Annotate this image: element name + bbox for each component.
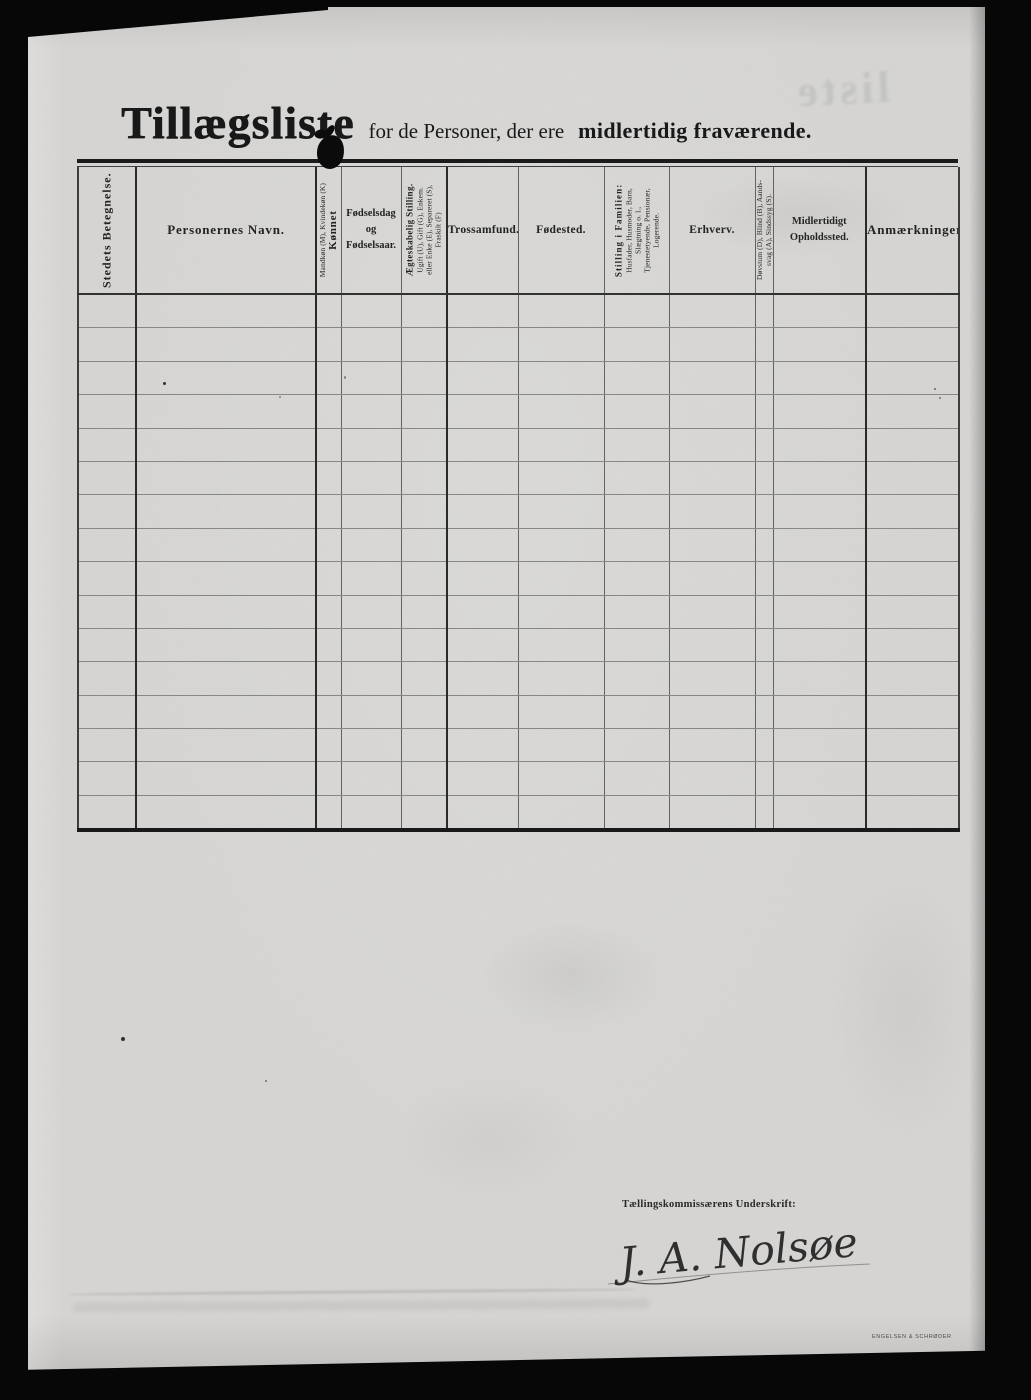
header-line: Erhverv.: [670, 224, 755, 236]
empty-cell: [136, 294, 316, 328]
empty-cell: [773, 695, 866, 728]
paper-speck: [939, 397, 941, 399]
header-line: Trossamfund.: [448, 224, 518, 236]
empty-cell: [669, 294, 755, 328]
empty-cell: [866, 695, 959, 728]
header-line: Mandkøn (M), Kvindekøn (K): [318, 183, 327, 277]
empty-cell: [401, 562, 447, 595]
empty-cell: [447, 528, 518, 561]
empty-cell: [518, 595, 604, 628]
empty-cell: [669, 461, 755, 494]
empty-cell: [401, 729, 447, 762]
empty-cell: [518, 495, 604, 528]
empty-cell: [341, 461, 401, 494]
header-line: Stilling i Familien:: [613, 183, 624, 277]
header-line: Ægteskabelig Stilling.: [405, 184, 416, 277]
empty-cell: [78, 662, 136, 695]
empty-cell: [866, 662, 959, 695]
empty-cell: [341, 695, 401, 728]
form-table: Stedets Betegnelse. Personernes Navn. Ma…: [77, 167, 960, 832]
header-line: Ugift (U), Gift (G), Enkem.: [416, 184, 425, 277]
empty-cell: [773, 762, 866, 795]
empty-cell: [866, 495, 959, 528]
empty-cell: [773, 729, 866, 762]
empty-cell: [401, 294, 447, 328]
empty-cell: [316, 495, 341, 528]
empty-cell: [136, 395, 316, 428]
empty-cell: [773, 595, 866, 628]
header-line: Stedets Betegnelse.: [100, 172, 114, 288]
empty-cell: [669, 795, 755, 830]
empty-cell: [866, 428, 959, 461]
title-rule-thick: [77, 159, 958, 163]
empty-cell: [755, 595, 773, 628]
empty-cell: [773, 294, 866, 328]
table-row: [78, 628, 959, 661]
header-line: eller Enke (E), Separeret (S),: [425, 184, 434, 277]
empty-cell: [518, 695, 604, 728]
empty-cell: [401, 395, 447, 428]
empty-cell: [755, 729, 773, 762]
empty-cell: [316, 762, 341, 795]
empty-cell: [341, 328, 401, 361]
empty-cell: [866, 595, 959, 628]
table-row: [78, 395, 959, 428]
empty-cell: [604, 294, 669, 328]
column-header-fodselsdag: Fødselsdag og Fødselsaar.: [341, 167, 401, 294]
table-row: [78, 695, 959, 728]
empty-cell: [518, 762, 604, 795]
empty-cell: [773, 662, 866, 695]
empty-cell: [447, 461, 518, 494]
printer-mark: ENGELSEN & SCHRØDER: [872, 1334, 952, 1340]
table-row: [78, 662, 959, 695]
empty-cell: [866, 762, 959, 795]
empty-cell: [401, 495, 447, 528]
empty-cell: [518, 662, 604, 695]
empty-cell: [604, 461, 669, 494]
empty-cell: [669, 328, 755, 361]
table-row: [78, 528, 959, 561]
empty-cell: [755, 328, 773, 361]
empty-cell: [773, 328, 866, 361]
empty-cell: [518, 361, 604, 394]
empty-cell: [518, 428, 604, 461]
empty-cell: [604, 395, 669, 428]
empty-cell: [316, 729, 341, 762]
empty-cell: [341, 395, 401, 428]
empty-cell: [447, 628, 518, 661]
empty-cell: [755, 562, 773, 595]
table-row: [78, 428, 959, 461]
empty-cell: [136, 361, 316, 394]
empty-cell: [755, 695, 773, 728]
empty-cell: [316, 361, 341, 394]
empty-cell: [78, 729, 136, 762]
empty-cell: [669, 395, 755, 428]
empty-cell: [316, 428, 341, 461]
empty-cell: [518, 461, 604, 494]
empty-cell: [78, 628, 136, 661]
empty-cell: [755, 428, 773, 461]
header-line: Kønnet: [327, 183, 340, 277]
empty-cell: [316, 461, 341, 494]
empty-cell: [604, 795, 669, 830]
column-header-aegteskabelig-stilling: Ægteskabelig Stilling. Ugift (U), Gift (…: [401, 167, 447, 294]
empty-cell: [341, 762, 401, 795]
empty-cell: [773, 395, 866, 428]
form-title: Tillægsliste for de Personer, der ere mi…: [121, 96, 812, 149]
header-line: Husfader, Husmoder, Barn,: [624, 183, 633, 277]
empty-cell: [341, 528, 401, 561]
empty-cell: [401, 528, 447, 561]
empty-cell: [604, 595, 669, 628]
empty-cell: [773, 495, 866, 528]
empty-cell: [773, 562, 866, 595]
empty-cell: [669, 428, 755, 461]
empty-cell: [755, 528, 773, 561]
empty-cell: [604, 328, 669, 361]
empty-cell: [136, 495, 316, 528]
empty-cell: [866, 361, 959, 394]
empty-cell: [604, 662, 669, 695]
empty-cell: [669, 695, 755, 728]
empty-cell: [401, 662, 447, 695]
empty-cell: [773, 528, 866, 561]
empty-cell: [136, 595, 316, 628]
empty-cell: [755, 361, 773, 394]
empty-cell: [78, 695, 136, 728]
empty-cell: [866, 294, 959, 328]
empty-cell: [755, 762, 773, 795]
table-body: [78, 294, 959, 830]
empty-cell: [401, 361, 447, 394]
header-line: Midlertidigt: [774, 214, 866, 230]
empty-cell: [316, 595, 341, 628]
paper-speck: [163, 382, 166, 385]
empty-cell: [447, 428, 518, 461]
empty-cell: [604, 428, 669, 461]
empty-cell: [669, 628, 755, 661]
empty-cell: [604, 562, 669, 595]
paper-speck: [344, 376, 346, 379]
empty-cell: [447, 729, 518, 762]
empty-cell: [518, 528, 604, 561]
signature-name: J. A. Nolsøe: [611, 1218, 860, 1287]
empty-cell: [604, 695, 669, 728]
column-header-konnet: Mandkøn (M), Kvindekøn (K) Kønnet: [316, 167, 341, 294]
empty-cell: [136, 628, 316, 661]
empty-cell: [316, 628, 341, 661]
empty-cell: [669, 595, 755, 628]
empty-cell: [316, 395, 341, 428]
empty-cell: [341, 628, 401, 661]
column-header-anmaerkninger: Anmærkninger: [866, 167, 959, 294]
empty-cell: [136, 562, 316, 595]
table-row: [78, 729, 959, 762]
empty-cell: [447, 795, 518, 830]
empty-cell: [669, 495, 755, 528]
empty-cell: [447, 328, 518, 361]
empty-cell: [136, 795, 316, 830]
empty-cell: [773, 361, 866, 394]
empty-cell: [669, 528, 755, 561]
header-line: Fødselsaar.: [342, 238, 401, 254]
empty-cell: [866, 328, 959, 361]
header-line: og: [342, 222, 401, 238]
empty-cell: [78, 528, 136, 561]
empty-cell: [866, 795, 959, 830]
empty-cell: [341, 795, 401, 830]
header-line: Fødselsdag: [342, 206, 401, 222]
empty-cell: [401, 461, 447, 494]
empty-cell: [518, 729, 604, 762]
empty-cell: [447, 395, 518, 428]
empty-cell: [447, 562, 518, 595]
empty-cell: [136, 528, 316, 561]
empty-cell: [78, 595, 136, 628]
header-line: svag (A), Sindssyg (S).: [764, 180, 773, 280]
column-header-dovstum-blind: Døvstum (D), Blind (B), Aands- svag (A),…: [755, 167, 773, 294]
empty-cell: [669, 562, 755, 595]
empty-cell: [316, 695, 341, 728]
empty-cell: [755, 461, 773, 494]
empty-cell: [669, 729, 755, 762]
paper-speck: [265, 1080, 267, 1082]
empty-cell: [604, 528, 669, 561]
column-header-personernes-navn: Personernes Navn.: [136, 167, 316, 294]
empty-cell: [518, 328, 604, 361]
empty-cell: [669, 762, 755, 795]
empty-cell: [401, 328, 447, 361]
empty-cell: [518, 395, 604, 428]
empty-cell: [78, 495, 136, 528]
scanned-census-form: liste Tillægsliste for de Personer, der …: [0, 0, 1031, 1400]
table-row: [78, 762, 959, 795]
empty-cell: [447, 695, 518, 728]
empty-cell: [866, 628, 959, 661]
form-table-wrap: Stedets Betegnelse. Personernes Navn. Ma…: [77, 167, 958, 832]
column-header-stilling-i-familien: Stilling i Familien: Husfader, Husmoder,…: [604, 167, 669, 294]
table-row: [78, 294, 959, 328]
empty-cell: [755, 628, 773, 661]
empty-cell: [401, 795, 447, 830]
empty-cell: [78, 395, 136, 428]
empty-cell: [604, 729, 669, 762]
empty-cell: [604, 361, 669, 394]
empty-cell: [341, 428, 401, 461]
form-title-subtitle: for de Personer, der ere: [369, 119, 565, 144]
empty-cell: [78, 361, 136, 394]
empty-cell: [866, 395, 959, 428]
empty-cell: [755, 795, 773, 830]
empty-cell: [341, 562, 401, 595]
table-row: [78, 361, 959, 394]
empty-cell: [341, 361, 401, 394]
empty-cell: [604, 762, 669, 795]
empty-cell: [604, 628, 669, 661]
empty-cell: [316, 294, 341, 328]
empty-cell: [401, 762, 447, 795]
empty-cell: [755, 395, 773, 428]
empty-cell: [773, 461, 866, 494]
header-line: Fødested.: [519, 224, 604, 236]
empty-cell: [518, 795, 604, 830]
empty-cell: [773, 795, 866, 830]
empty-cell: [136, 662, 316, 695]
empty-cell: [866, 461, 959, 494]
empty-cell: [341, 294, 401, 328]
empty-cell: [755, 495, 773, 528]
empty-cell: [518, 562, 604, 595]
empty-cell: [604, 495, 669, 528]
header-line: Fraskilt (F): [434, 184, 443, 277]
header-line: Personernes Navn.: [137, 222, 315, 238]
column-header-erhverv: Erhverv.: [669, 167, 755, 294]
empty-cell: [773, 428, 866, 461]
empty-cell: [401, 695, 447, 728]
empty-cell: [447, 361, 518, 394]
empty-cell: [341, 595, 401, 628]
empty-cell: [341, 495, 401, 528]
empty-cell: [401, 628, 447, 661]
handwritten-signature: J. A. Nolsøe: [598, 1206, 888, 1296]
empty-cell: [78, 428, 136, 461]
empty-cell: [78, 562, 136, 595]
empty-cell: [447, 294, 518, 328]
paper-speck: [121, 1037, 125, 1041]
header-row: Stedets Betegnelse. Personernes Navn. Ma…: [78, 167, 959, 294]
empty-cell: [447, 495, 518, 528]
header-line: Tjenestetyende, Pensionær,: [642, 183, 651, 277]
empty-cell: [316, 795, 341, 830]
column-header-stedets-betegnelse: Stedets Betegnelse.: [78, 167, 136, 294]
header-line: Opholdssted.: [774, 230, 866, 246]
empty-cell: [78, 294, 136, 328]
paper-speck: [934, 388, 936, 390]
table-row: [78, 795, 959, 830]
empty-cell: [136, 729, 316, 762]
empty-cell: [136, 328, 316, 361]
empty-cell: [866, 562, 959, 595]
table-row: [78, 328, 959, 361]
empty-cell: [316, 328, 341, 361]
table-row: [78, 562, 959, 595]
table-row: [78, 495, 959, 528]
empty-cell: [401, 595, 447, 628]
header-line: Logerende.: [651, 183, 660, 277]
empty-cell: [773, 628, 866, 661]
column-header-fodested: Fødested.: [518, 167, 604, 294]
empty-cell: [316, 662, 341, 695]
table-row: [78, 461, 959, 494]
empty-cell: [136, 428, 316, 461]
empty-cell: [866, 528, 959, 561]
empty-cell: [341, 729, 401, 762]
empty-cell: [755, 662, 773, 695]
column-header-trossamfund: Trossamfund.: [447, 167, 518, 294]
empty-cell: [755, 294, 773, 328]
empty-cell: [341, 662, 401, 695]
empty-cell: [78, 328, 136, 361]
empty-cell: [136, 461, 316, 494]
empty-cell: [78, 795, 136, 830]
empty-cell: [447, 762, 518, 795]
empty-cell: [518, 628, 604, 661]
form-title-subtitle-bold: midlertidig fraværende.: [578, 118, 812, 144]
empty-cell: [669, 662, 755, 695]
empty-cell: [316, 562, 341, 595]
empty-cell: [401, 428, 447, 461]
column-header-midlertidigt-opholdssted: Midlertidigt Opholdssted.: [773, 167, 866, 294]
empty-cell: [447, 595, 518, 628]
header-line: Slægtning o. l.,: [633, 183, 642, 277]
empty-cell: [518, 294, 604, 328]
header-line: Anmærkninger: [867, 222, 958, 238]
paper-speck: [279, 396, 281, 398]
table-row: [78, 595, 959, 628]
empty-cell: [136, 695, 316, 728]
empty-cell: [78, 461, 136, 494]
empty-cell: [316, 528, 341, 561]
empty-cell: [866, 729, 959, 762]
empty-cell: [447, 662, 518, 695]
header-line: Døvstum (D), Blind (B), Aands-: [755, 180, 764, 280]
empty-cell: [136, 762, 316, 795]
empty-cell: [78, 762, 136, 795]
empty-cell: [669, 361, 755, 394]
